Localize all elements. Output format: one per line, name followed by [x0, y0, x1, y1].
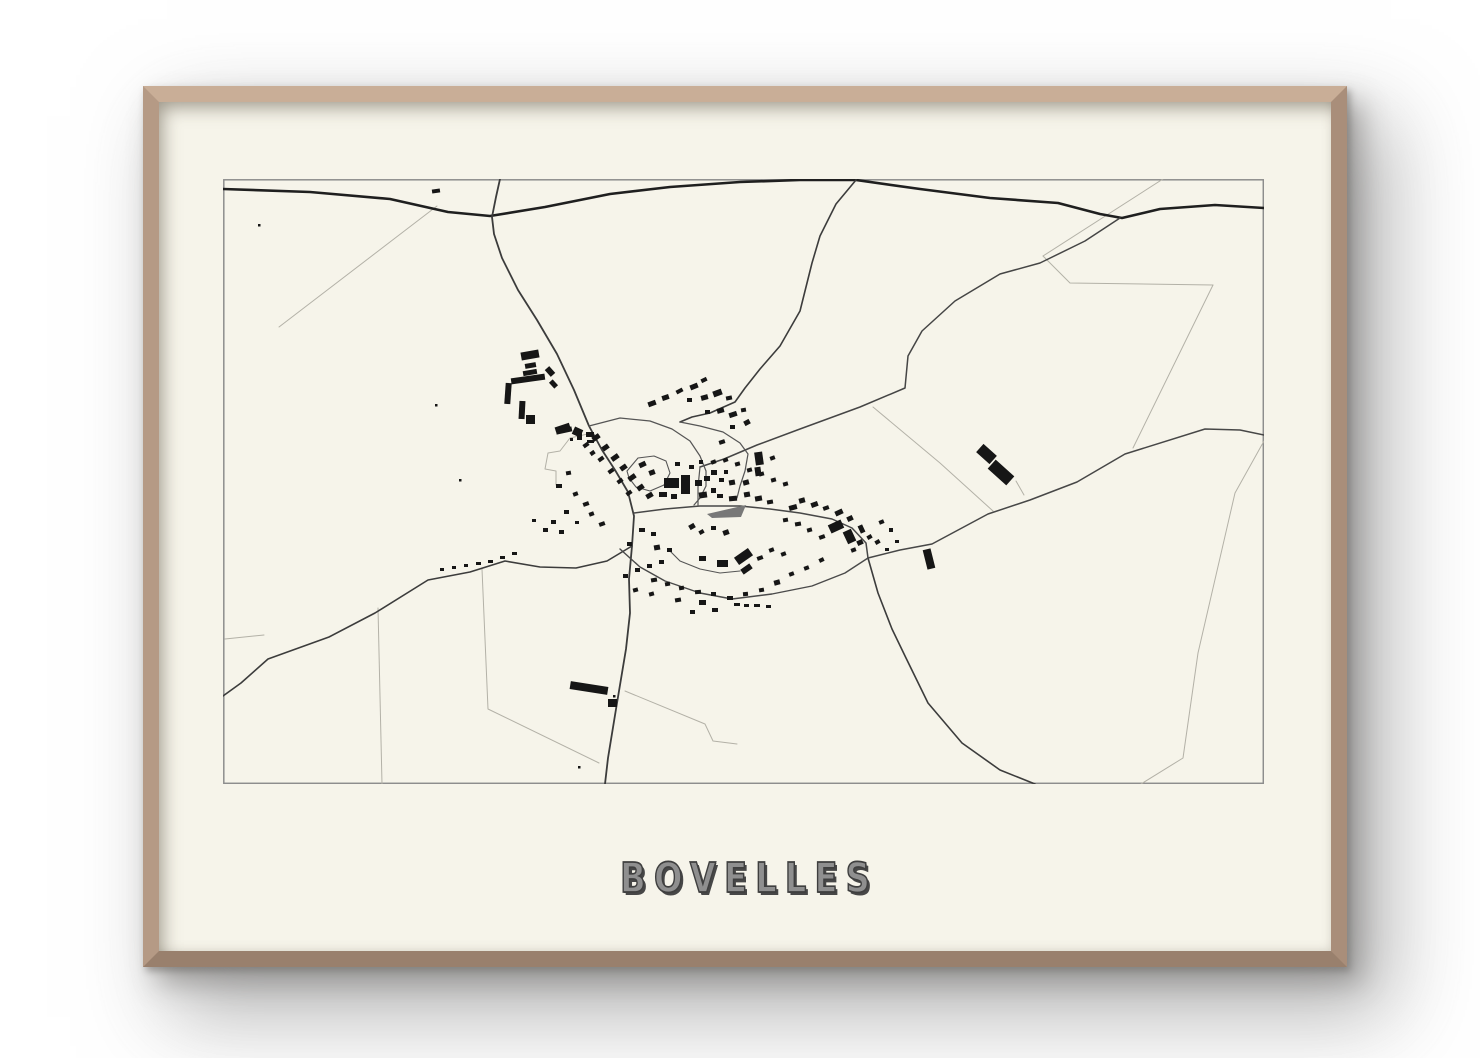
building-footprint	[712, 608, 718, 612]
building-footprint	[766, 605, 771, 608]
building-footprint	[675, 462, 680, 466]
building-footprint	[705, 410, 710, 414]
building-footprint	[586, 432, 594, 437]
field-boundary-line	[378, 608, 382, 784]
building-footprint	[588, 511, 594, 516]
building-footprint	[747, 467, 753, 472]
building-footprint	[711, 488, 716, 493]
building-footprint	[619, 463, 628, 471]
map-canvas	[223, 179, 1264, 784]
building-footprint	[734, 603, 740, 606]
building-footprint	[744, 492, 751, 498]
building-footprint	[788, 504, 797, 511]
building-footprint	[695, 590, 701, 595]
building-footprint	[671, 494, 677, 499]
building-footprint	[699, 460, 703, 464]
building-footprint	[659, 492, 667, 497]
building-footprint	[923, 548, 936, 569]
road-line	[700, 218, 1120, 467]
building-footprint	[675, 598, 682, 603]
building-footprint	[608, 699, 617, 707]
building-footprint	[699, 491, 708, 498]
building-footprint	[798, 497, 805, 503]
road-line	[223, 180, 1264, 218]
building-footprint	[551, 520, 556, 524]
picture-frame: BOVELLES	[143, 86, 1347, 967]
building-footprint	[504, 383, 511, 404]
building-footprint	[543, 528, 548, 532]
building-footprint	[889, 528, 893, 532]
building-footprint	[988, 460, 1015, 486]
building-footprint	[711, 526, 716, 530]
building-footprint	[687, 398, 692, 402]
building-footprint	[681, 475, 690, 494]
field-boundary-line	[1016, 481, 1024, 495]
building-footprint	[741, 408, 747, 413]
road-line	[868, 558, 1035, 784]
building-footprint	[895, 540, 899, 543]
building-footprint	[755, 495, 763, 501]
building-footprint	[754, 604, 760, 607]
building-footprint	[768, 547, 774, 552]
building-footprint	[699, 556, 706, 561]
building-footprint	[744, 604, 749, 607]
building-footprint	[795, 522, 802, 527]
road-line	[680, 180, 856, 422]
field-boundary-line	[625, 691, 737, 744]
building-footprint	[464, 564, 468, 567]
building-footprint	[597, 456, 604, 463]
building-footprint	[850, 547, 856, 552]
building-footprint	[716, 407, 724, 414]
building-footprint	[651, 578, 658, 583]
building-footprint	[689, 465, 694, 469]
building-footprint	[807, 527, 813, 532]
building-footprint	[667, 548, 672, 552]
building-footprint	[729, 480, 736, 486]
building-footprint	[638, 461, 646, 468]
building-footprint	[771, 477, 777, 482]
building-footprint	[719, 478, 724, 482]
town-map-svg	[223, 179, 1264, 784]
building-footprint	[500, 556, 505, 559]
building-footprint	[659, 560, 664, 564]
building-footprint	[440, 568, 444, 571]
building-footprint	[712, 389, 723, 398]
building-footprint	[818, 557, 824, 563]
building-footprint	[700, 377, 707, 383]
building-footprint	[773, 579, 780, 585]
field-boundary-line	[279, 206, 437, 327]
building-footprint	[722, 529, 729, 536]
building-footprint	[577, 430, 582, 440]
building-footprint	[679, 586, 685, 591]
building-footprint	[803, 565, 809, 570]
building-footprint	[488, 560, 493, 563]
building-footprint	[810, 501, 818, 508]
building-footprint	[740, 563, 752, 574]
building-footprint	[690, 610, 695, 614]
building-footprint	[452, 566, 456, 569]
building-footprint	[717, 560, 728, 567]
building-footprint	[866, 534, 872, 540]
building-footprint	[711, 470, 717, 475]
building-footprint	[874, 539, 880, 545]
building-footprint	[780, 551, 786, 556]
building-footprint	[878, 519, 884, 525]
building-footprint	[754, 452, 764, 466]
map-dot	[459, 479, 462, 482]
building-footprint	[564, 510, 569, 514]
building-footprint	[636, 483, 645, 491]
photo-backdrop: { "poster": { "title": "BOVELLES" }, "co…	[0, 0, 1480, 1058]
building-footprint	[767, 500, 774, 505]
building-footprint	[742, 479, 749, 485]
building-footprint	[704, 476, 710, 481]
building-footprint	[645, 492, 654, 500]
building-footprint	[719, 439, 726, 445]
building-footprint	[743, 592, 748, 596]
field-boundary-line	[1133, 285, 1213, 448]
road-line	[634, 429, 1264, 558]
field-boundary-line	[1043, 256, 1213, 285]
building-footprint	[633, 587, 639, 592]
building-footprint	[689, 383, 698, 391]
building-footprint	[675, 388, 683, 395]
building-footprint	[834, 509, 843, 517]
building-footprint	[822, 505, 829, 511]
building-footprint	[788, 571, 794, 576]
map-dot	[613, 695, 616, 698]
building-footprint	[512, 552, 517, 555]
building-footprint	[735, 461, 741, 466]
building-footprint	[727, 596, 733, 600]
building-footprint	[654, 545, 661, 551]
building-footprint	[549, 379, 558, 388]
building-footprint	[885, 548, 889, 551]
building-footprint	[730, 425, 735, 429]
building-footprint	[635, 568, 640, 572]
building-footprint	[582, 501, 589, 507]
building-footprint	[818, 534, 825, 540]
building-footprint	[572, 491, 578, 496]
building-footprint	[724, 470, 728, 474]
building-footprint	[647, 564, 652, 568]
poster-title: BOVELLES	[264, 858, 1225, 899]
building-footprint	[623, 574, 628, 578]
building-footprint	[651, 532, 656, 536]
field-boundary-line	[1043, 179, 1163, 256]
building-footprint	[649, 591, 655, 596]
building-footprint	[432, 188, 440, 193]
map-dot	[435, 404, 438, 407]
building-footprint	[734, 548, 753, 565]
road-line	[698, 467, 700, 506]
building-footprint	[587, 440, 594, 443]
building-footprint	[598, 521, 605, 527]
building-footprint	[575, 521, 579, 524]
field-boundary-line	[225, 635, 264, 639]
building-footprint	[664, 478, 679, 488]
building-footprint	[556, 484, 562, 488]
building-footprint	[627, 542, 632, 546]
building-footprint	[743, 419, 751, 426]
road-line	[223, 546, 632, 696]
building-footprint	[519, 401, 526, 419]
building-footprint	[647, 400, 656, 407]
building-footprint	[756, 555, 763, 561]
building-footprint	[665, 582, 671, 587]
building-footprint	[476, 562, 481, 565]
building-footprint	[520, 349, 539, 360]
building-footprint	[688, 523, 696, 530]
building-footprint	[759, 588, 765, 593]
building-footprint	[976, 444, 997, 464]
building-footprint	[545, 366, 555, 377]
building-footprint	[783, 481, 789, 486]
building-footprint	[846, 515, 854, 522]
building-footprint	[711, 592, 716, 596]
building-footprint	[858, 524, 866, 533]
field-boundary-line	[1198, 441, 1264, 653]
building-footprint	[566, 471, 572, 476]
building-footprint	[783, 518, 789, 523]
field-boundary-line	[545, 433, 592, 485]
field-boundary-line	[1141, 653, 1198, 784]
map-dot	[258, 224, 261, 227]
building-footprint	[559, 530, 564, 534]
building-footprint	[661, 394, 669, 401]
pond-shape	[707, 505, 746, 518]
building-footprint	[828, 519, 844, 533]
building-footprint	[726, 395, 733, 400]
building-footprint	[570, 681, 609, 695]
building-footprint	[769, 455, 775, 460]
building-footprint	[610, 453, 619, 462]
field-boundary-line	[873, 407, 993, 511]
building-footprint	[699, 600, 706, 605]
building-footprint	[525, 362, 537, 369]
building-footprint	[627, 473, 636, 482]
building-footprint	[717, 494, 723, 498]
field-boundary-line	[482, 569, 599, 763]
building-footprint	[728, 411, 737, 418]
map-dot	[578, 766, 581, 769]
building-footprint	[695, 480, 702, 486]
building-footprint	[729, 496, 737, 502]
building-footprint	[570, 438, 573, 441]
building-footprint	[648, 469, 655, 476]
building-footprint	[639, 528, 645, 532]
building-footprint	[698, 529, 704, 535]
building-footprint	[589, 450, 595, 456]
building-footprint	[532, 519, 536, 522]
building-footprint	[526, 415, 535, 424]
building-footprint	[700, 394, 708, 401]
map-poster: BOVELLES	[159, 102, 1331, 951]
road-line	[492, 179, 634, 784]
